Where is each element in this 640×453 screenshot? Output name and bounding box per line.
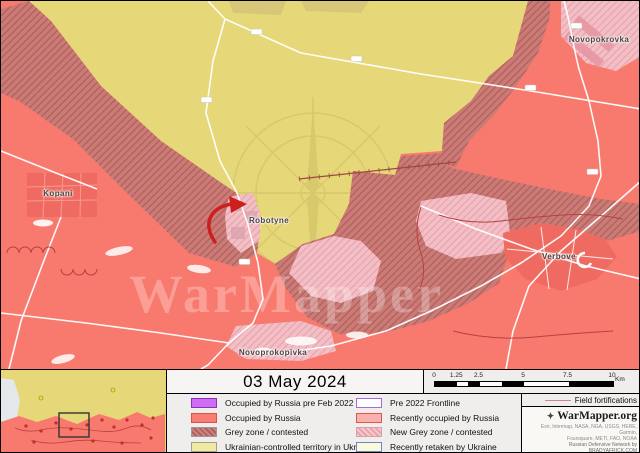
inset-overview-map <box>1 369 167 453</box>
town-label-robotyne: Robotyne <box>249 216 289 225</box>
main-map: Kopani Robotyne Novoprokopivka Verbove N… <box>1 1 640 369</box>
scalebar <box>434 381 614 387</box>
town-label-kopani: Kopani <box>43 189 73 198</box>
town-label-novoprokopivka: Novoprokopivka <box>239 348 307 357</box>
legend-label: Recently retaken by Ukraine <box>390 442 497 452</box>
brand-row: ✦WarMapper.org <box>522 410 637 422</box>
swatch-occupied-by-russia <box>191 413 217 423</box>
legend-item: Occupied by Russia <box>191 411 372 426</box>
legend-item: Ukrainian-controlled territory in Ukrain… <box>191 440 372 453</box>
town-label-novopokrovka: Novopokrovka <box>569 35 629 44</box>
scalebar-unit: Km <box>615 376 625 383</box>
legend-label: Pre 2022 Frontline <box>390 398 460 408</box>
swatch-recently-occupied <box>356 413 382 423</box>
scalebar-labels: 0 1.25 2.5 5 7.5 10 <box>434 372 612 380</box>
scalebar-tick: 7.5 <box>563 372 572 379</box>
legend-item: Occupied by Russia pre Feb 2022 <box>191 396 372 411</box>
fortifications-label: Field fortifications <box>575 396 637 405</box>
swatch-occupied-pre-feb-2022 <box>191 398 217 408</box>
legend-label: Recently occupied by Russia <box>390 413 499 423</box>
map-canvas <box>1 1 640 369</box>
credit-line: Esri, Intermap, NASA, NGA, USGS, HERE, G… <box>522 424 637 436</box>
legend-label: New Grey zone / contested <box>390 427 493 437</box>
swatch-recently-retaken <box>356 442 382 452</box>
fortification-line-sample <box>545 400 571 401</box>
legend-label: Occupied by Russia pre Feb 2022 <box>225 398 354 408</box>
fortifications-legend-row: Field fortifications <box>522 394 640 407</box>
swatch-ukrainian-controlled <box>191 442 217 452</box>
scalebar-tick: 0 <box>432 372 436 379</box>
legend-item: Pre 2022 Frontline <box>356 396 499 411</box>
town-label-verbove: Verbove <box>542 252 576 261</box>
map-credits: Esri, Intermap, NASA, NGA, USGS, HERE, G… <box>522 424 637 453</box>
legend-item: Grey zone / contested <box>191 425 372 440</box>
swatch-pre-2022-frontline <box>356 398 382 408</box>
legend-column-right: Pre 2022 Frontline Recently occupied by … <box>356 396 499 453</box>
legend-item: Recently retaken by Ukraine <box>356 440 499 453</box>
scalebar-tick: 2.5 <box>474 372 483 379</box>
field-patch <box>229 1 286 15</box>
swatch-grey-zone <box>191 427 217 437</box>
legend-label: Grey zone / contested <box>225 427 308 437</box>
scalebar-tick: 1.25 <box>450 372 463 379</box>
compass-icon: ✦ <box>547 411 555 421</box>
legend-item: Recently occupied by Russia <box>356 411 499 426</box>
legend-panel: Occupied by Russia pre Feb 2022 Occupied… <box>167 393 521 453</box>
map-date: 03 May 2024 <box>243 372 347 392</box>
brand-name: WarMapper.org <box>557 410 637 422</box>
credit-line: Russian Defensive Network by BRADYAFRICK… <box>522 442 637 453</box>
attribution-box: ✦WarMapper.org Esri, Intermap, NASA, NGA… <box>522 407 640 453</box>
fortifications-attribution-panel: Field fortifications ✦WarMapper.org Esri… <box>521 393 640 453</box>
warmap-screenshot: Kopani Robotyne Novoprokopivka Verbove N… <box>0 0 640 453</box>
legend-label: Occupied by Russia <box>225 413 301 423</box>
legend-column-left: Occupied by Russia pre Feb 2022 Occupied… <box>191 396 372 453</box>
date-panel: 03 May 2024 <box>167 369 423 393</box>
legend-item: New Grey zone / contested <box>356 425 499 440</box>
scalebar-panel: 0 1.25 2.5 5 7.5 10 Km <box>423 369 640 393</box>
legend-label: Ukrainian-controlled territory in Ukrain… <box>225 442 372 452</box>
scalebar-tick: 5 <box>521 372 525 379</box>
swatch-new-grey-zone <box>356 427 382 437</box>
